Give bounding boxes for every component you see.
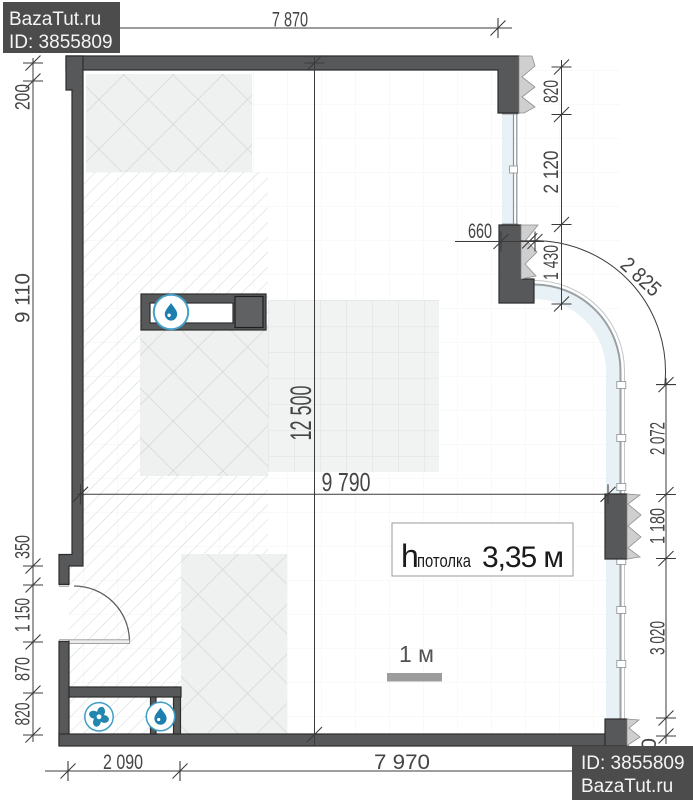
svg-text:ID: 3855809: ID: 3855809 bbox=[9, 32, 113, 53]
svg-text:1 180: 1 180 bbox=[646, 508, 670, 544]
svg-text:1 150: 1 150 bbox=[11, 598, 35, 632]
svg-text:2 072: 2 072 bbox=[646, 422, 670, 455]
svg-text:870: 870 bbox=[11, 657, 35, 681]
svg-text:3,35 м: 3,35 м bbox=[482, 541, 564, 574]
svg-text:3 020: 3 020 bbox=[646, 621, 670, 655]
svg-text:7 870: 7 870 bbox=[272, 8, 308, 32]
svg-text:2 090: 2 090 bbox=[103, 750, 143, 774]
svg-text:1 м: 1 м bbox=[399, 641, 434, 667]
svg-text:потолка: потолка bbox=[417, 550, 472, 571]
svg-text:820: 820 bbox=[11, 702, 35, 725]
svg-text:ID: 3855809: ID: 3855809 bbox=[581, 753, 685, 774]
svg-text:820: 820 bbox=[539, 80, 563, 103]
svg-text:660: 660 bbox=[468, 219, 492, 243]
svg-text:2 120: 2 120 bbox=[539, 150, 563, 193]
svg-text:BazaTut.ru: BazaTut.ru bbox=[9, 9, 101, 30]
svg-text:1 430: 1 430 bbox=[539, 245, 563, 280]
svg-text:9 110: 9 110 bbox=[11, 273, 35, 323]
svg-text:9 790: 9 790 bbox=[322, 467, 371, 497]
svg-text:200: 200 bbox=[11, 84, 35, 110]
svg-text:350: 350 bbox=[11, 535, 35, 559]
svg-text:12 500: 12 500 bbox=[285, 386, 318, 441]
svg-text:7 970: 7 970 bbox=[374, 750, 430, 774]
svg-text:BazaTut.ru: BazaTut.ru bbox=[581, 776, 673, 797]
